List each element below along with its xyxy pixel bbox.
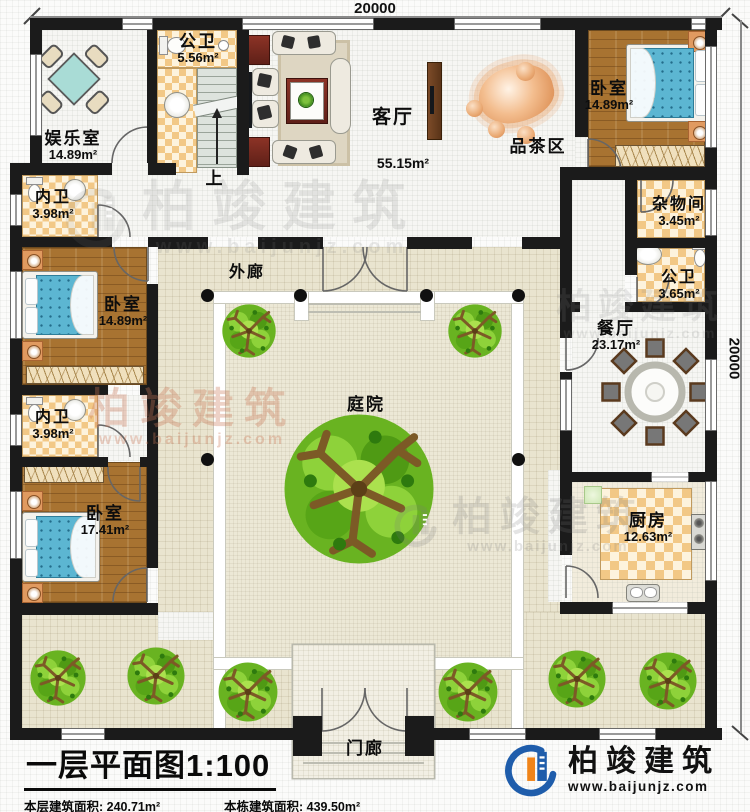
wall-bedsw-south: [10, 603, 158, 615]
room-label-bath-east: 公卫 3.65m²: [644, 270, 714, 301]
wall-dining-kitchen-a: [560, 472, 652, 482]
wall-veranda-n3: [407, 237, 472, 249]
wall-veranda-n2: [258, 237, 323, 249]
room-label-kitchen: 厨房 12.63m²: [606, 512, 690, 544]
pillow: [25, 278, 38, 305]
room-area: 17.41m²: [64, 523, 146, 537]
entrance-step-line2: [308, 311, 421, 313]
room-area: 3.98m²: [18, 427, 88, 441]
wall-bedroom-ne-south: [560, 167, 712, 180]
tea-stone: [488, 121, 505, 138]
wall-kitchen-west: [560, 482, 572, 555]
door-gap-bedroom-ne: [575, 137, 588, 167]
wall-easthall-west: [560, 180, 572, 312]
room-label-bath-top: 公卫 5.56m²: [160, 33, 236, 65]
wall-dining-west-a: [560, 312, 572, 338]
floor-vestibule-2: [98, 395, 147, 461]
room-name: 外廊: [214, 265, 280, 282]
window-south-1: [62, 729, 104, 739]
porch-pier-right: [405, 716, 434, 756]
window-west-2: [11, 272, 21, 338]
tea-stone: [516, 62, 535, 81]
wall-bedw-south-a: [10, 385, 108, 395]
wall-bathe-south: [625, 302, 712, 312]
room-area: 14.89m²: [28, 148, 118, 162]
room-name: 内卫: [18, 190, 88, 207]
living-cabinet-1: [246, 35, 270, 65]
room-label-bath-west1: 内卫 3.98m²: [18, 190, 88, 221]
pillow: [25, 549, 38, 577]
wall-bathw2-south-a: [10, 457, 108, 467]
floor-courtyard: [225, 303, 512, 658]
dim-top: 20000: [330, 0, 420, 17]
brand-name: 柏竣建筑: [568, 747, 720, 777]
armchair-pillow: [257, 73, 272, 88]
room-name: 公卫: [160, 33, 236, 51]
room-label-bath-west2: 内卫 3.98m²: [18, 410, 88, 441]
floor-bath-top-b: [157, 68, 197, 173]
wall-stairs-living: [237, 18, 249, 175]
brand-url: www.baijunjz.com: [568, 777, 720, 797]
room-name: 餐厅: [576, 320, 656, 338]
wall-bathw1-south-b: [148, 237, 158, 247]
column-dot: [420, 289, 433, 302]
title-block: 一层平面图1:100 本层建筑面积: 240.71m² 本栋建筑面积: 439.…: [24, 740, 360, 812]
room-label-dining: 餐厅 23.17m²: [576, 320, 656, 352]
window-north-2: [243, 19, 373, 29]
room-name: 卧室: [64, 505, 146, 523]
room-name: 客厅: [352, 108, 434, 128]
wall-ent-south-a: [10, 163, 112, 175]
room-label-veranda: 外廊: [214, 265, 280, 282]
room-area: 3.45m²: [636, 214, 722, 228]
wall-west-garden: [10, 612, 22, 740]
window-west-upper: [31, 55, 41, 135]
kitchen-mat: [584, 486, 602, 504]
plan-stats: 本层建筑面积: 240.71m² 本栋建筑面积: 439.50m² 占地面积: …: [24, 796, 360, 812]
window-east-4: [706, 482, 716, 580]
window-north-4: [692, 19, 705, 29]
room-area: 23.17m²: [576, 338, 656, 352]
wall-storage-bathe: [625, 238, 712, 248]
room-name: 卧室: [568, 80, 650, 98]
room-name: 娱乐室: [28, 130, 118, 148]
room-label-tea: 品茶区: [500, 138, 576, 156]
column-dot: [294, 289, 307, 302]
nightstand: [22, 250, 43, 270]
window-kitchen-south: [613, 603, 687, 613]
kitchen-sink-icon: [626, 584, 660, 602]
wall-kitchen-south-a: [560, 602, 613, 614]
window-dining-west: [561, 380, 571, 430]
living-cabinet-2: [246, 137, 270, 167]
floor-east-hall: [572, 180, 625, 312]
window-dining-kitchen: [652, 473, 688, 481]
wall-veranda-n1: [158, 237, 208, 249]
room-label-bedroom-west: 卧室 14.89m²: [82, 296, 164, 328]
column-dot: [512, 453, 525, 466]
nightstand: [22, 583, 43, 603]
wall-ent-south-b: [148, 163, 176, 175]
closet-bedroom-ne: [615, 145, 705, 167]
tea-stone: [466, 100, 483, 117]
room-label-courtyard: 庭院: [332, 396, 400, 414]
room-name: 品茶区: [500, 138, 576, 156]
brand-logo: 柏竣建筑 www.baijunjz.com: [502, 744, 720, 800]
room-label-entertainment: 娱乐室 14.89m²: [28, 130, 118, 162]
stat-floor-area: 本层建筑面积: 240.71m²: [24, 796, 214, 812]
plant: [299, 93, 313, 107]
wall-dining-kitchen-b: [688, 472, 712, 482]
floor-plan-canvas: 娱乐室 14.89m² 公卫 5.56m² 上 客厅 55.15m² 品茶区 卧…: [0, 0, 750, 812]
closet-bedroom-west: [26, 366, 144, 384]
window-north-1: [123, 19, 152, 29]
nightstand: [22, 341, 43, 361]
window-east-3: [706, 360, 716, 430]
brand-logo-icon: [502, 744, 558, 800]
wall-bathw1-south-a: [10, 237, 112, 247]
room-area: 14.89m²: [568, 98, 650, 112]
room-name: 杂物间: [636, 197, 722, 214]
window-west-4: [11, 492, 21, 558]
stair-arrow-head: [212, 108, 222, 118]
column-dot: [201, 453, 214, 466]
room-area: 55.15m²: [368, 156, 438, 171]
room-area: 3.98m²: [18, 207, 88, 221]
sofa-pillow: [307, 35, 321, 49]
pillow: [25, 519, 38, 547]
window-south-3: [600, 729, 655, 739]
column-dot: [201, 289, 214, 302]
sink-icon: [164, 92, 190, 118]
stairs-up-label: 上: [202, 170, 228, 188]
room-area: 3.65m²: [644, 287, 714, 301]
plan-title: 一层平面图1:100: [24, 740, 276, 791]
room-area-living: 55.15m²: [368, 156, 438, 171]
room-area: 14.89m²: [82, 314, 164, 328]
room-label-living: 客厅: [352, 108, 434, 128]
pillow: [25, 307, 38, 334]
chaise: [330, 58, 351, 134]
wall-veranda-n4: [522, 237, 560, 249]
entrance-step-line1: [308, 303, 421, 305]
sofa-bottom: [272, 140, 336, 164]
room-name: 公卫: [644, 270, 714, 287]
wall-south-a: [10, 728, 293, 740]
window-north-3: [455, 19, 540, 29]
room-name: 卧室: [82, 296, 164, 314]
column-dot: [512, 289, 525, 302]
dim-right: 20000: [726, 319, 743, 399]
wall-kitchen-south-b: [687, 602, 712, 614]
room-label-bedroom-ne: 卧室 14.89m²: [568, 80, 650, 112]
room-name: 上: [202, 170, 228, 188]
walkway-north: [214, 292, 523, 303]
room-area: 5.56m²: [160, 51, 236, 65]
window-south-2: [470, 729, 525, 739]
room-name: 庭院: [332, 396, 400, 414]
room-label-storage: 杂物间 3.45m²: [636, 197, 722, 228]
stat-building-area: 本栋建筑面积: 439.50m²: [224, 796, 360, 812]
room-label-bedroom-sw: 卧室 17.41m²: [64, 505, 146, 537]
nightstand: [22, 491, 43, 511]
room-name: 内卫: [18, 410, 88, 427]
room-name: 厨房: [606, 512, 690, 530]
room-area: 12.63m²: [606, 530, 690, 544]
wall-dining-nw-stub: [560, 302, 580, 312]
window-east-1: [706, 47, 716, 147]
wall-ent-bath-divider: [147, 18, 157, 163]
stair-arrow: [216, 118, 218, 164]
